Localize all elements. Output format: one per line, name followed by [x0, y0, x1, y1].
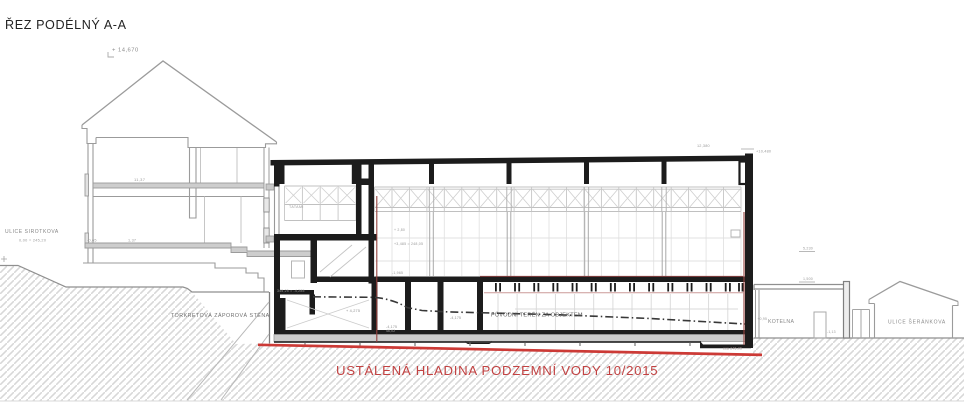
svg-text:1,500: 1,500 [803, 277, 813, 281]
svg-text:-1,965: -1,965 [392, 271, 403, 275]
svg-text:+0,95: +0,95 [758, 317, 768, 321]
svg-text:-4,175: -4,175 [450, 316, 461, 320]
svg-text:12,380: 12,380 [697, 144, 710, 148]
svg-text:TATAMI: TATAMI [289, 205, 304, 209]
svg-text:+3,485 = 248,05: +3,485 = 248,05 [394, 242, 423, 246]
svg-text:+ 2,80: + 2,80 [394, 228, 405, 232]
svg-text:0,00 = 245,20: 0,00 = 245,20 [19, 239, 46, 243]
svg-text:PŮVODNÍ TERÉN ZA OBJEKTEM: PŮVODNÍ TERÉN ZA OBJEKTEM [491, 312, 583, 319]
svg-text:ULICE SIROTKOVA: ULICE SIROTKOVA [5, 229, 59, 235]
svg-text:-1,13: -1,13 [827, 330, 836, 334]
svg-text:345,25 = -4,285: 345,25 = -4,285 [277, 289, 305, 293]
svg-text:+10,480: +10,480 [756, 150, 771, 154]
svg-text:cca 245,05: cca 245,05 [723, 347, 742, 351]
svg-text:46,02: 46,02 [386, 329, 395, 333]
svg-text:11,37: 11,37 [134, 177, 146, 182]
svg-text:+ 4,275: + 4,275 [346, 309, 360, 313]
svg-text:+ 14,670: + 14,670 [112, 48, 139, 54]
svg-text:5,230: 5,230 [803, 247, 813, 251]
svg-text:TORKRETOVÁ ZÁPOROVÁ STĚNA: TORKRETOVÁ ZÁPOROVÁ STĚNA [171, 311, 270, 319]
svg-text:1,37: 1,37 [128, 239, 136, 243]
svg-text:USTÁLENÁ HLADINA PODZEMNÍ VODY: USTÁLENÁ HLADINA PODZEMNÍ VODY 10/2015 [336, 363, 660, 378]
svg-text:KOTELNA: KOTELNA [768, 319, 795, 325]
svg-text:ULICE ŠERÁNKOVA: ULICE ŠERÁNKOVA [888, 319, 946, 326]
svg-text:ŘEZ PODÉLNÝ A-A: ŘEZ PODÉLNÝ A-A [5, 17, 128, 32]
svg-text:-0,65: -0,65 [87, 239, 97, 243]
